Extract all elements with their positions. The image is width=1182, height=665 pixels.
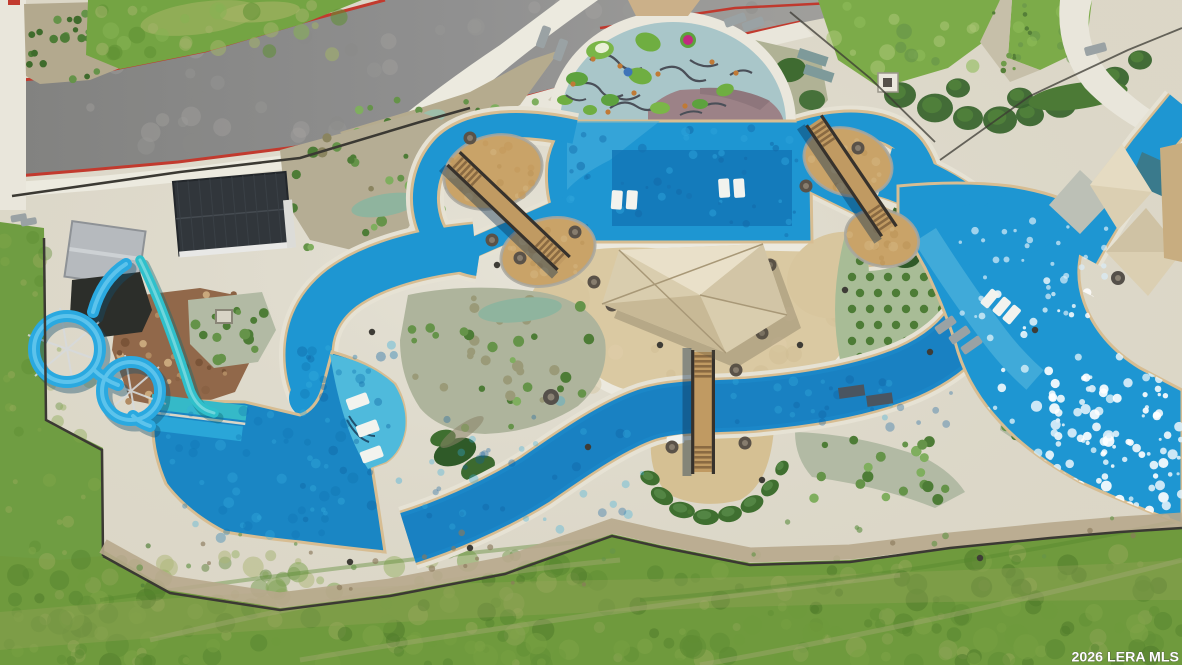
svg-text:2026 LERA MLS: 2026 LERA MLS: [1072, 650, 1180, 665]
